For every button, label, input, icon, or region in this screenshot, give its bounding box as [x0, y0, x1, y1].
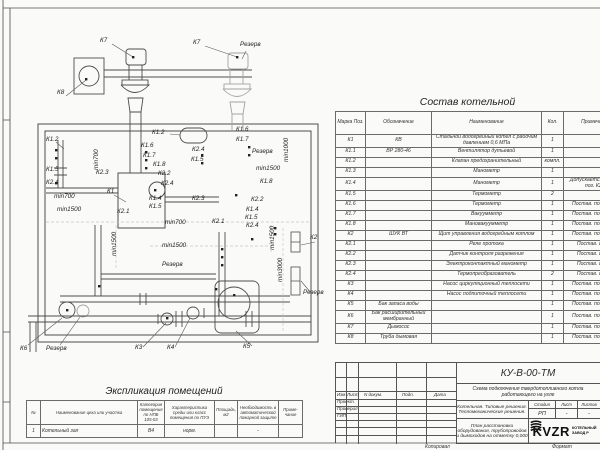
- expl-col-fire: Необходимость в автоматической пожарной …: [238, 401, 279, 425]
- rev-col-izm: Изм: [337, 393, 345, 398]
- plan-label: К7: [193, 40, 200, 46]
- role-checked: Проверил: [337, 407, 358, 412]
- spec-row: К1.4Манометр1Допускается замена поз. К2.…: [336, 177, 600, 190]
- plan-label: К1.4: [246, 207, 258, 213]
- plan-label: К2.1: [117, 209, 129, 215]
- plan-label: К2: [310, 235, 317, 241]
- explication-table: Экспликация помещений № Наименование цех…: [26, 386, 302, 438]
- plan-label: Резерв: [252, 149, 273, 155]
- plan-label: min1500: [112, 232, 118, 256]
- doc-number: КУ-В-00-ТМ: [456, 363, 600, 384]
- spec-row: К1.7Вакуумметр1Постав. по соглас.: [336, 210, 600, 220]
- plan-label: К5: [243, 344, 250, 350]
- plan-label: К2.2: [158, 171, 170, 177]
- spec-col-designation: Обозначение: [366, 112, 432, 135]
- spec-row: К7Дымосос1Постав. по соглас.: [336, 323, 600, 333]
- spec-row: К1.1ВР 280-46Вентилятор дутьевой1: [336, 147, 600, 157]
- plan-label: К2.4: [246, 223, 258, 229]
- explication-row: 1Котельный залВ4норм.-: [27, 424, 303, 437]
- spec-row: К1КВСтальной водогрейный котел с рабочим…: [336, 135, 600, 148]
- title-block: Изм Лист N докум. Подп. Дата Проект. Про…: [335, 362, 600, 443]
- plan-label: К1.5: [191, 157, 203, 163]
- plan-label: К8: [57, 90, 64, 96]
- spec-col-note: Примечание: [564, 112, 600, 135]
- plan-label: К1.2: [152, 130, 164, 136]
- plan-label: min1500: [162, 243, 186, 249]
- plan-label: min700: [165, 220, 186, 226]
- plan-label: К1.7: [236, 137, 248, 143]
- plan-label: К1.5: [149, 204, 161, 210]
- expl-col-area: Площадь, м2: [215, 401, 238, 425]
- listov-label: Листов: [578, 401, 600, 409]
- plan-label: К2.3: [192, 196, 204, 202]
- plan-label: К1.6: [141, 143, 153, 149]
- company-name: КОТЕЛЬНЫЙ ЗАВОД Р: [572, 426, 597, 435]
- plan-label: К1.8: [260, 179, 272, 185]
- plan-label: К2.3: [96, 170, 108, 176]
- spec-row: К8Труба дымовая1Постав. по соглас.: [336, 333, 600, 343]
- spec-header-row: Марка Поз. Обозначение Наименование Кол.…: [336, 112, 600, 135]
- list-label: Лист: [556, 401, 578, 409]
- plan-label: К1.4: [149, 196, 161, 202]
- listov-value: -: [578, 409, 600, 419]
- expl-col-category: Категория помещения по НПБ 105-03: [138, 401, 165, 425]
- rev-col-date: Дата: [434, 393, 446, 398]
- plan-label: К1: [107, 189, 114, 195]
- sheet-title: План расстановки оборудования, трубопров…: [456, 419, 529, 444]
- plan-label: min700: [54, 194, 75, 200]
- role-gip: ГИП: [337, 414, 346, 419]
- plan-label: К2.1: [212, 219, 224, 225]
- spec-row: К2.4Термопреобразователь2Постав. с ШУК: [336, 270, 600, 280]
- spec-col-qty: Кол.: [542, 112, 564, 135]
- plan-label: К7: [100, 38, 107, 44]
- spring-icon: [529, 419, 543, 433]
- plan-label: К1.6: [236, 127, 248, 133]
- plan-label: Резерв: [303, 290, 324, 296]
- plan-label: К1.2: [46, 137, 58, 143]
- role-project: Проект.: [337, 400, 355, 405]
- spec-col-mark: Марка Поз.: [336, 112, 366, 135]
- plan-label: К2.2: [251, 197, 263, 203]
- plan-label: min700: [94, 149, 100, 170]
- spec-row: К2ШУК ВТЩит управления водогрейным котло…: [336, 230, 600, 240]
- plan-label: К1.7: [143, 153, 155, 159]
- spec-row: К1.8Мановакуумметр1Постав. по соглас.: [336, 220, 600, 230]
- plan-label: К1.8: [153, 162, 165, 168]
- plan-label: min1500: [57, 207, 81, 213]
- footer-format: Формат: [552, 444, 572, 450]
- spec-row: К5Бак запаса воды1Постав. по соглас.: [336, 300, 600, 310]
- stage-label: Стадия: [529, 401, 556, 409]
- plan-label: К1.5: [46, 167, 58, 173]
- expl-col-name: Наименование цеха или участка: [41, 401, 138, 425]
- plan-label: К2.4: [46, 180, 58, 186]
- rev-col-list: Лист: [347, 393, 359, 398]
- spec-row: К1.3Манометр1: [336, 167, 600, 177]
- spec-row: К4Насос подпиточный теплосети1Постав. по…: [336, 290, 600, 300]
- spec-row: К6Бак расширительный мембранный1Постав. …: [336, 310, 600, 323]
- plan-label: min3000: [278, 258, 284, 282]
- plan-label: Резерв: [46, 346, 67, 352]
- spec-col-name: Наименование: [432, 112, 542, 135]
- plan-label: Резерв: [240, 42, 261, 48]
- rev-col-sign: Подп.: [402, 393, 414, 398]
- plan-label: К6: [20, 346, 27, 352]
- spec-row: К1.6Термометр1Постав. по соглас.: [336, 200, 600, 210]
- rev-col-ndoc: N докум.: [364, 393, 382, 398]
- list-value: -: [556, 409, 578, 419]
- footer-copied: Копировал: [425, 444, 450, 450]
- project-name: Котельная. Типовые решения. Тепломеханич…: [456, 401, 529, 419]
- spec-row: К3Насос циркуляционный теплосети1Постав.…: [336, 280, 600, 290]
- expl-col-class: Характеристика среды или класс помещения…: [165, 401, 215, 425]
- spec-row: К2.1Реле протока1Постав. с ШУК: [336, 240, 600, 250]
- plan-label: Резерв: [162, 262, 183, 268]
- expl-col-num: №: [27, 401, 41, 425]
- plan-label: К4: [167, 345, 174, 351]
- plan-label: К2.4: [192, 147, 204, 153]
- spec-row: К2.3Электроконтактный манометр1Постав. с…: [336, 260, 600, 270]
- expl-col-note: Приме-чание: [279, 401, 303, 425]
- doc-subtitle: Схема подключения твердотопливного котла…: [456, 384, 600, 401]
- spec-row: К1.5Термометр2: [336, 190, 600, 200]
- company-logo: KVZR КОТЕЛЬНЫЙ ЗАВОД Р: [529, 419, 600, 444]
- plan-label: К1.5: [245, 215, 257, 221]
- plan-label: min1500: [256, 166, 280, 172]
- explication-header-row: № Наименование цеха или участка Категори…: [27, 401, 303, 425]
- spec-table: Состав котельной Марка Поз. Обозначение …: [335, 96, 600, 344]
- plan-label: К3: [135, 345, 142, 351]
- plan-label: min1500: [270, 226, 276, 250]
- drawing-sheet: К7К8К7РезервК1.2К1.5К2.4min700min1500min…: [0, 0, 600, 450]
- spec-table-title: Состав котельной: [335, 96, 600, 108]
- explication-title: Экспликация помещений: [26, 386, 302, 397]
- stage-value: РП: [529, 409, 556, 419]
- plan-label: min1000: [284, 138, 290, 162]
- plan-label: К2.4: [161, 181, 173, 187]
- spec-row: К1.2Клапан предохранительныйкомпл.: [336, 157, 600, 167]
- spec-row: К2.2Датчик контроля разрежения1Постав. с…: [336, 250, 600, 260]
